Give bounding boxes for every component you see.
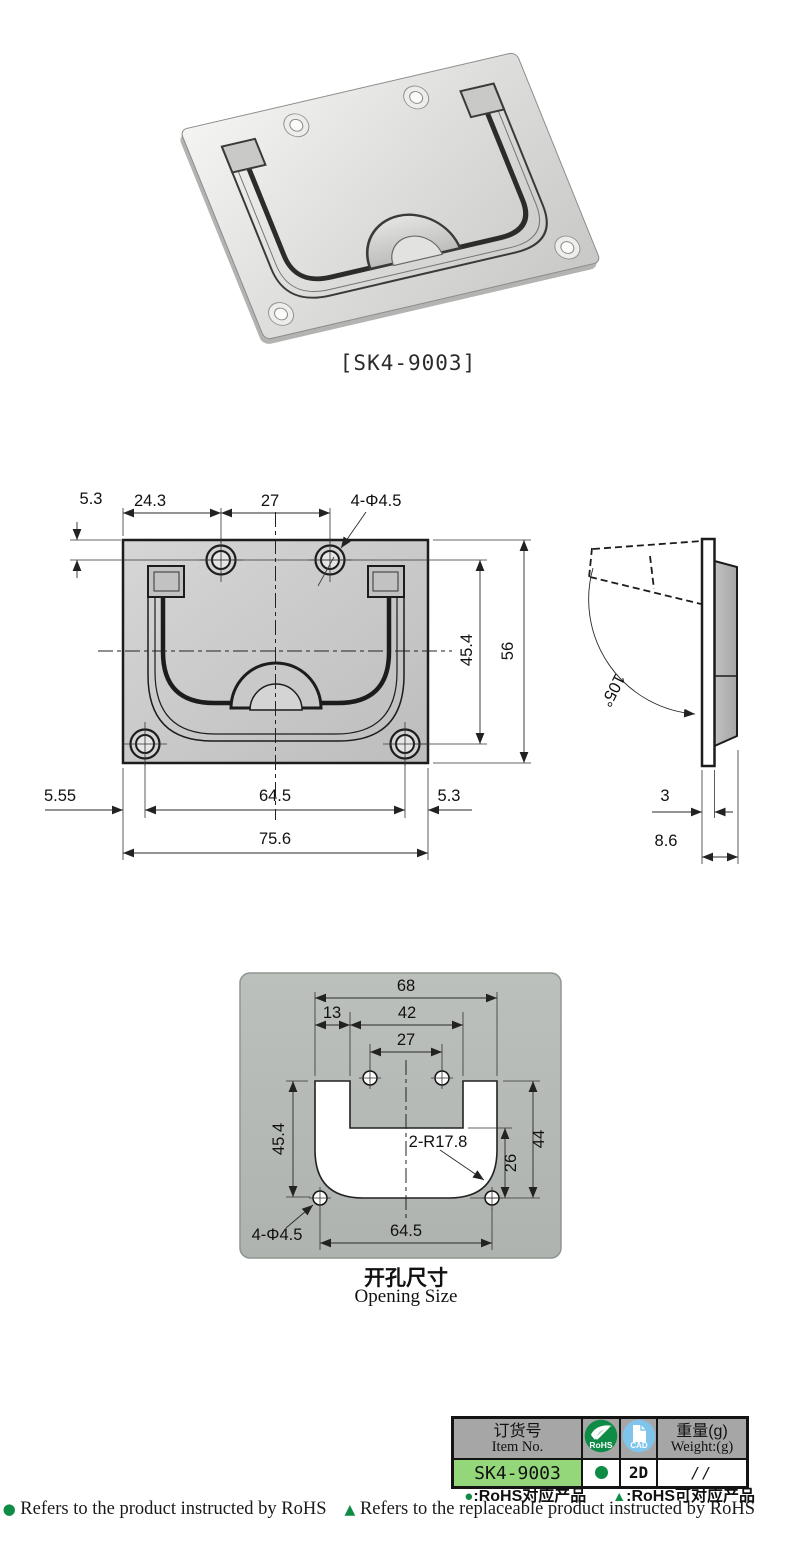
rohs-note-line: ● Refers to the product instructed by Ro… [0,1499,755,1520]
cad-file-icon: CAD [622,1419,656,1453]
header-item-no: 订货号 Item No. [453,1418,583,1460]
front-view-drawing: 5.3 24.3 27 4-Φ4.5 45.4 56 5.55 64.5 5.3… [44,490,531,860]
datasheet-page: 5.3 24.3 27 4-Φ4.5 45.4 56 5.55 64.5 5.3… [0,0,800,1558]
product-model-label: [SK4-9003] [288,351,528,375]
note-dot-label: Refers to the product instructed by RoHS [20,1499,326,1519]
svg-text:RoHS: RoHS [589,1440,612,1450]
dim-height: 56 [499,642,517,660]
side-view-drawing: 105° 3 8.6 [589,539,738,864]
header-weight-cn: 重量(g) [658,1423,746,1440]
opening-size-drawing: 68 13 42 27 45.4 2-R17.8 44 26 4-Φ4.5 64… [240,973,561,1258]
header-item-en: Item No. [454,1440,581,1455]
opening-size-caption-en: Opening Size [306,1286,506,1308]
dim-width-top: 68 [397,977,415,995]
note-tri-label: Refers to the replaceable product instru… [360,1499,755,1519]
dim-tab-left: 13 [323,1004,341,1022]
dim-lower-right: 26 [502,1154,520,1172]
drawing-canvas: 5.3 24.3 27 4-Φ4.5 45.4 56 5.55 64.5 5.3… [0,0,800,1558]
green-triangle-icon-en: ▲ [345,1502,356,1518]
weight-value: // [691,1464,713,1482]
dim-opening-holes-label: 4-Φ4.5 [252,1226,303,1244]
dim-hole-span: 27 [261,492,279,510]
rohs-logo-icon: RoHS [584,1419,618,1453]
dim-bottom-left: 5.55 [44,787,76,805]
dim-left-span: 24.3 [134,492,166,510]
header-weight: 重量(g) Weight:(g) [657,1418,748,1460]
header-item-cn: 订货号 [454,1423,581,1440]
dim-recess-height: 45.4 [458,634,476,666]
green-dot-icon-en: ● [3,1500,16,1518]
spec-table-header-row: 订货号 Item No. RoHS CAD [453,1418,748,1460]
cad-2d-value: 2D [629,1463,648,1482]
side-view-open-handle [589,541,702,604]
item-no-value: SK4-9003 [474,1463,561,1484]
product-photo [176,52,603,345]
dim-top-offset: 5.3 [80,490,103,508]
dim-depth-left: 45.4 [270,1123,288,1155]
dim-depth: 8.6 [655,832,678,850]
spec-table: 订货号 Item No. RoHS CAD [451,1416,749,1489]
dim-bottom-span: 64.5 [259,787,291,805]
dim-thickness: 3 [660,787,669,805]
rohs-compliant-dot [595,1466,608,1479]
dim-holes-label: 4-Φ4.5 [351,492,402,510]
dim-corner-radius: 2-R17.8 [409,1133,468,1151]
dim-tab-width: 42 [398,1004,416,1022]
header-weight-en: Weight:(g) [658,1440,746,1455]
header-rohs: RoHS [582,1418,620,1460]
dim-hole-span-bottom: 64.5 [390,1222,422,1240]
svg-text:CAD: CAD [630,1441,648,1450]
header-cad: CAD [620,1418,657,1460]
dim-open-angle: 105° [597,671,629,710]
dim-width: 75.6 [259,830,291,848]
dim-hole-span-top: 27 [397,1031,415,1049]
dim-bottom-right: 5.3 [438,787,461,805]
dim-depth-right: 44 [530,1130,548,1148]
